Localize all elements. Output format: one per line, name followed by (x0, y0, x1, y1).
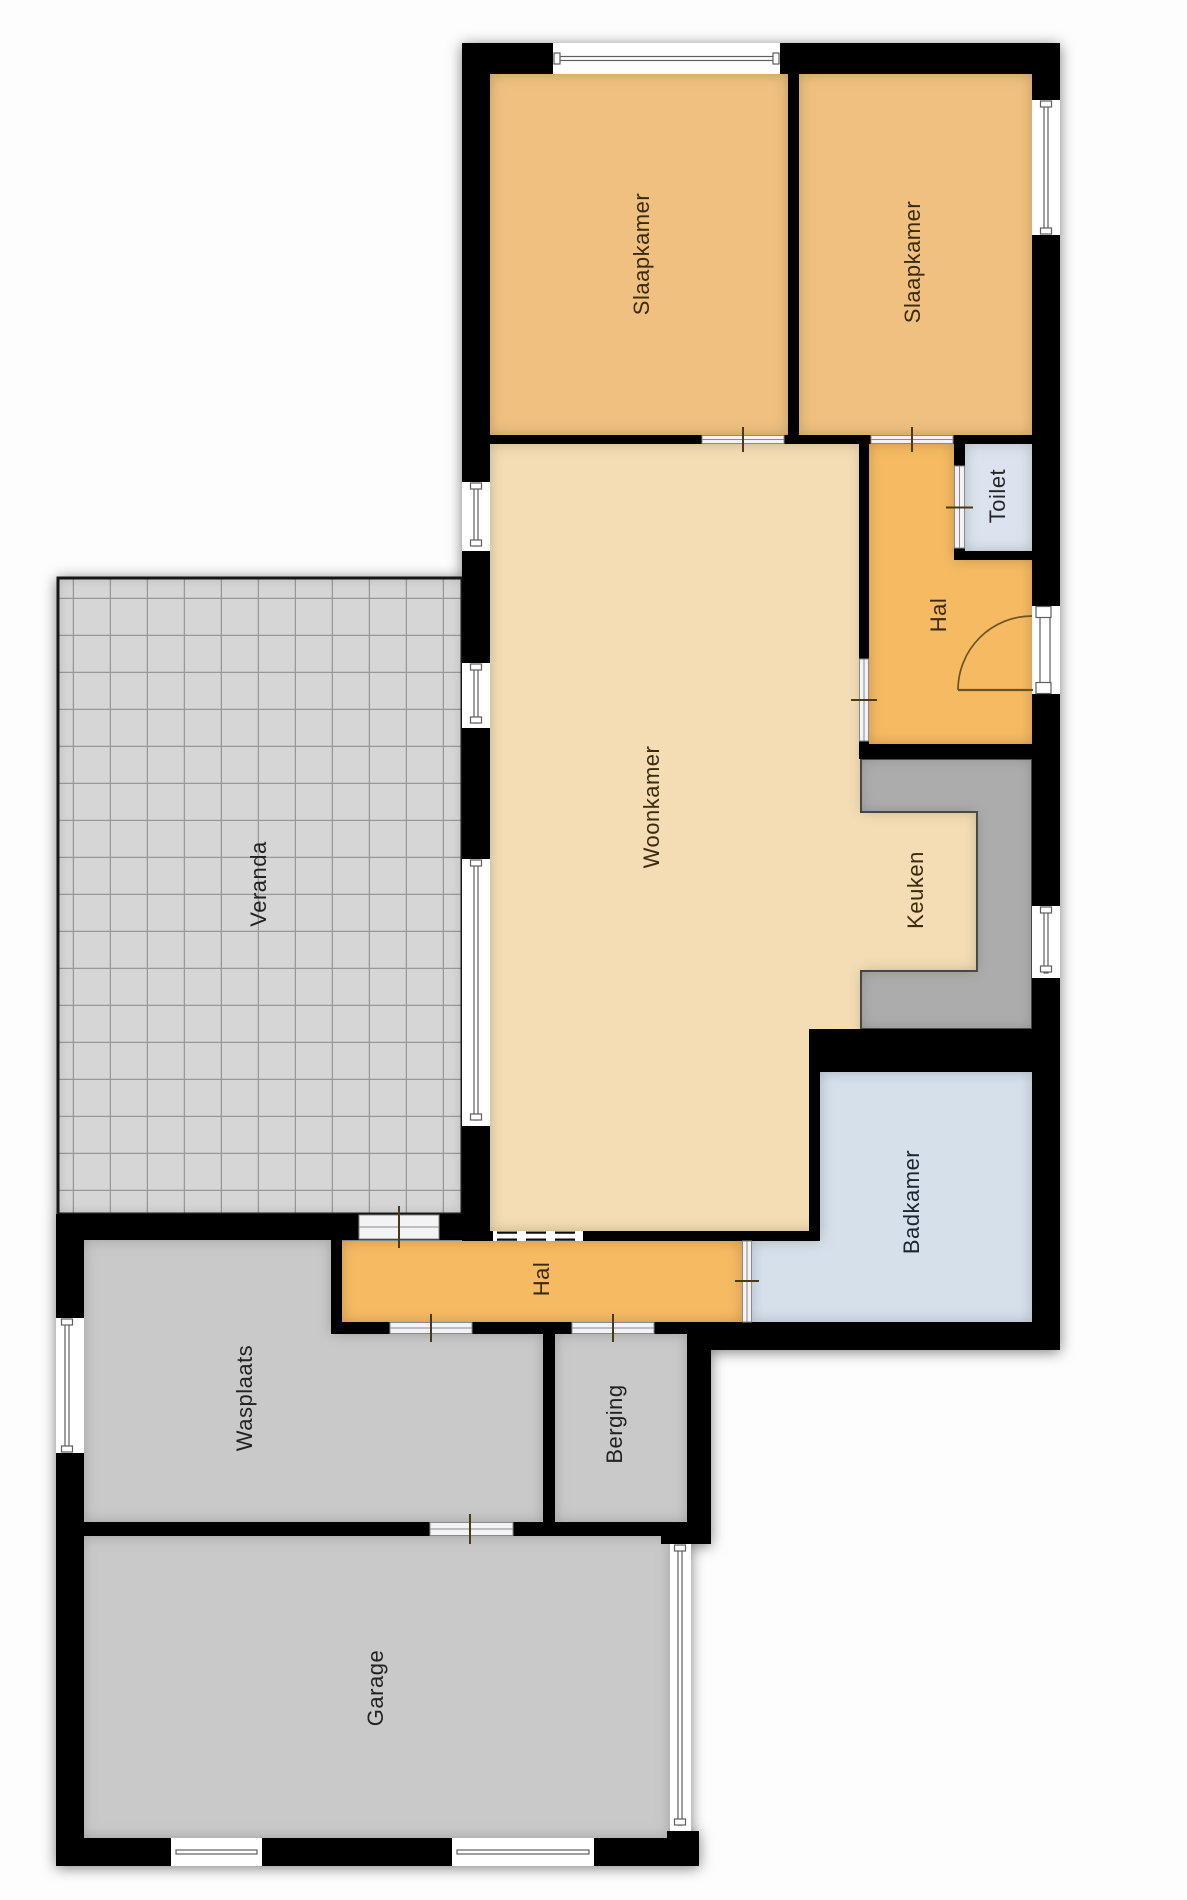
svg-text:Keuken: Keuken (903, 851, 928, 929)
svg-text:Badkamer: Badkamer (899, 1150, 924, 1254)
svg-text:Hal: Hal (529, 1262, 554, 1297)
svg-text:Berging: Berging (602, 1384, 627, 1463)
svg-text:Slaapkamer: Slaapkamer (900, 201, 925, 323)
svg-text:Garage: Garage (363, 1650, 388, 1726)
svg-text:Slaapkamer: Slaapkamer (629, 193, 654, 315)
svg-text:Woonkamer: Woonkamer (639, 746, 664, 869)
svg-text:Toilet: Toilet (985, 469, 1010, 523)
svg-text:Wasplaats: Wasplaats (232, 1345, 257, 1451)
svg-text:Hal: Hal (926, 598, 951, 633)
svg-text:Veranda: Veranda (246, 841, 271, 927)
